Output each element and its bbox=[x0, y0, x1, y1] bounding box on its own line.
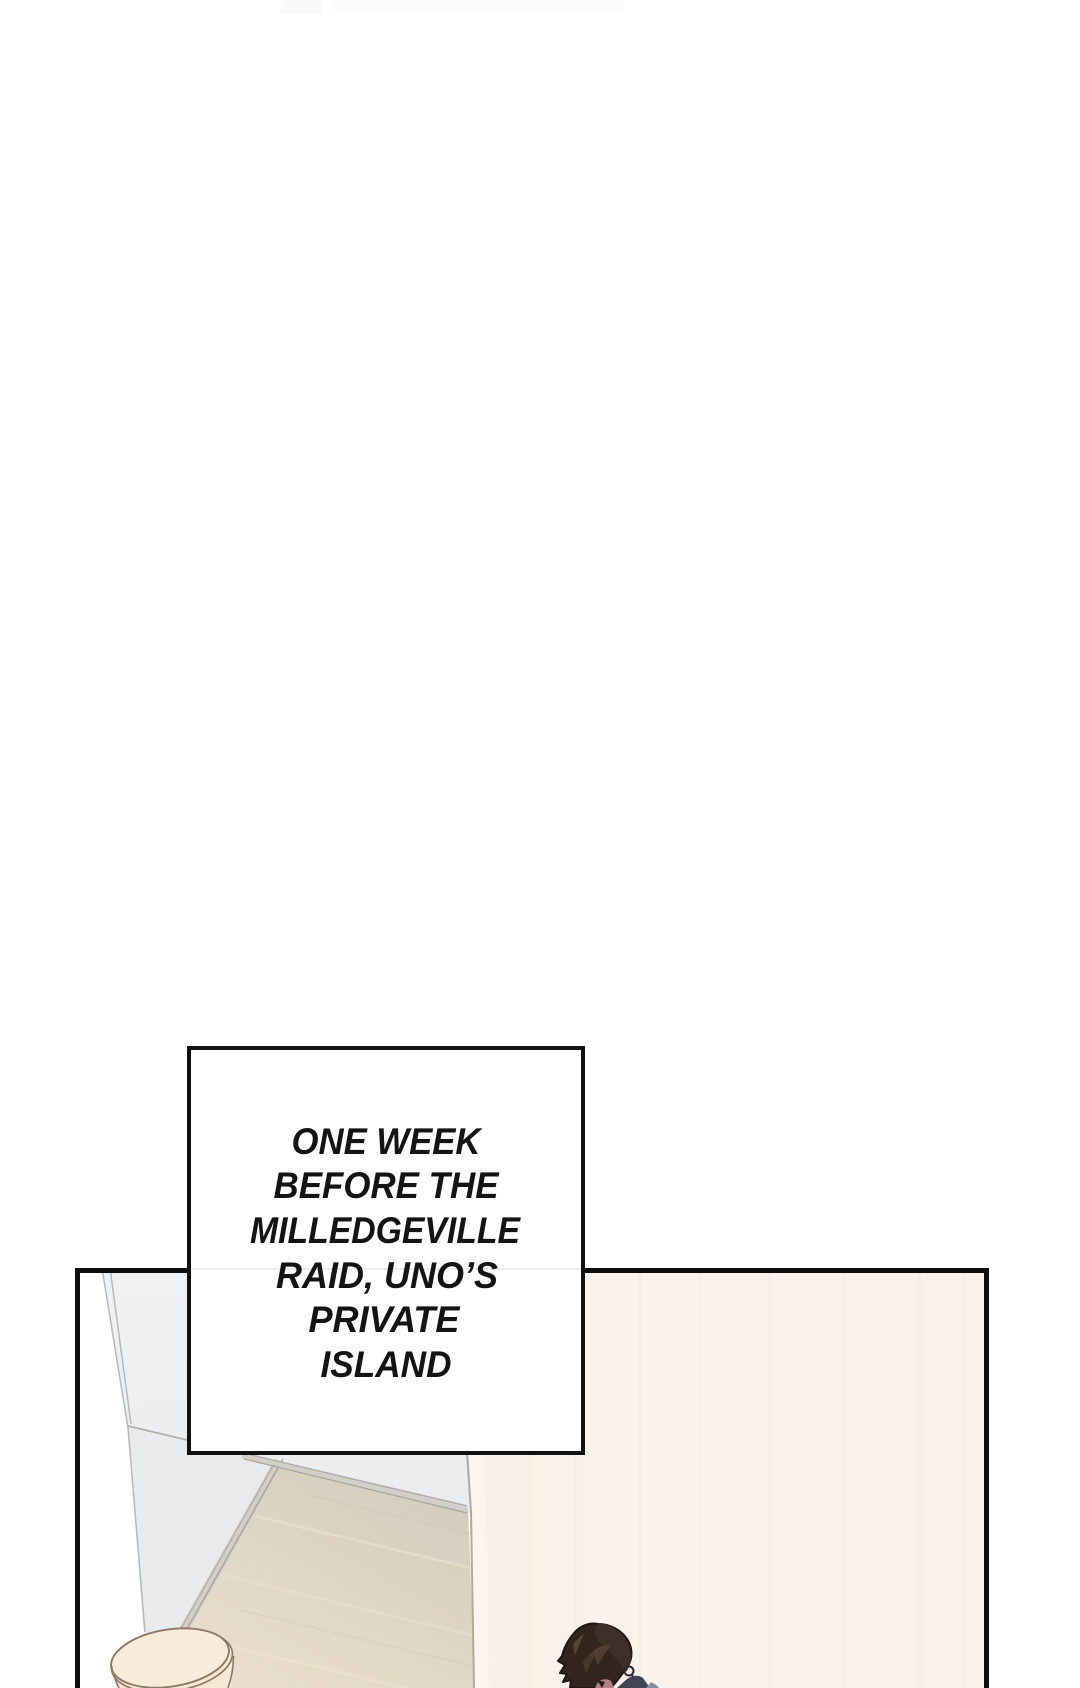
svg-text:BEFORE THE: BEFORE THE bbox=[274, 1165, 500, 1206]
svg-text:MILLEDGEVILLE: MILLEDGEVILLE bbox=[250, 1210, 521, 1251]
svg-text:ISLAND: ISLAND bbox=[321, 1344, 452, 1385]
svg-text:ONE WEEK: ONE WEEK bbox=[292, 1121, 483, 1162]
svg-text:PRIVATE: PRIVATE bbox=[309, 1299, 461, 1340]
svg-text:RAID, UNO’S: RAID, UNO’S bbox=[276, 1255, 498, 1296]
